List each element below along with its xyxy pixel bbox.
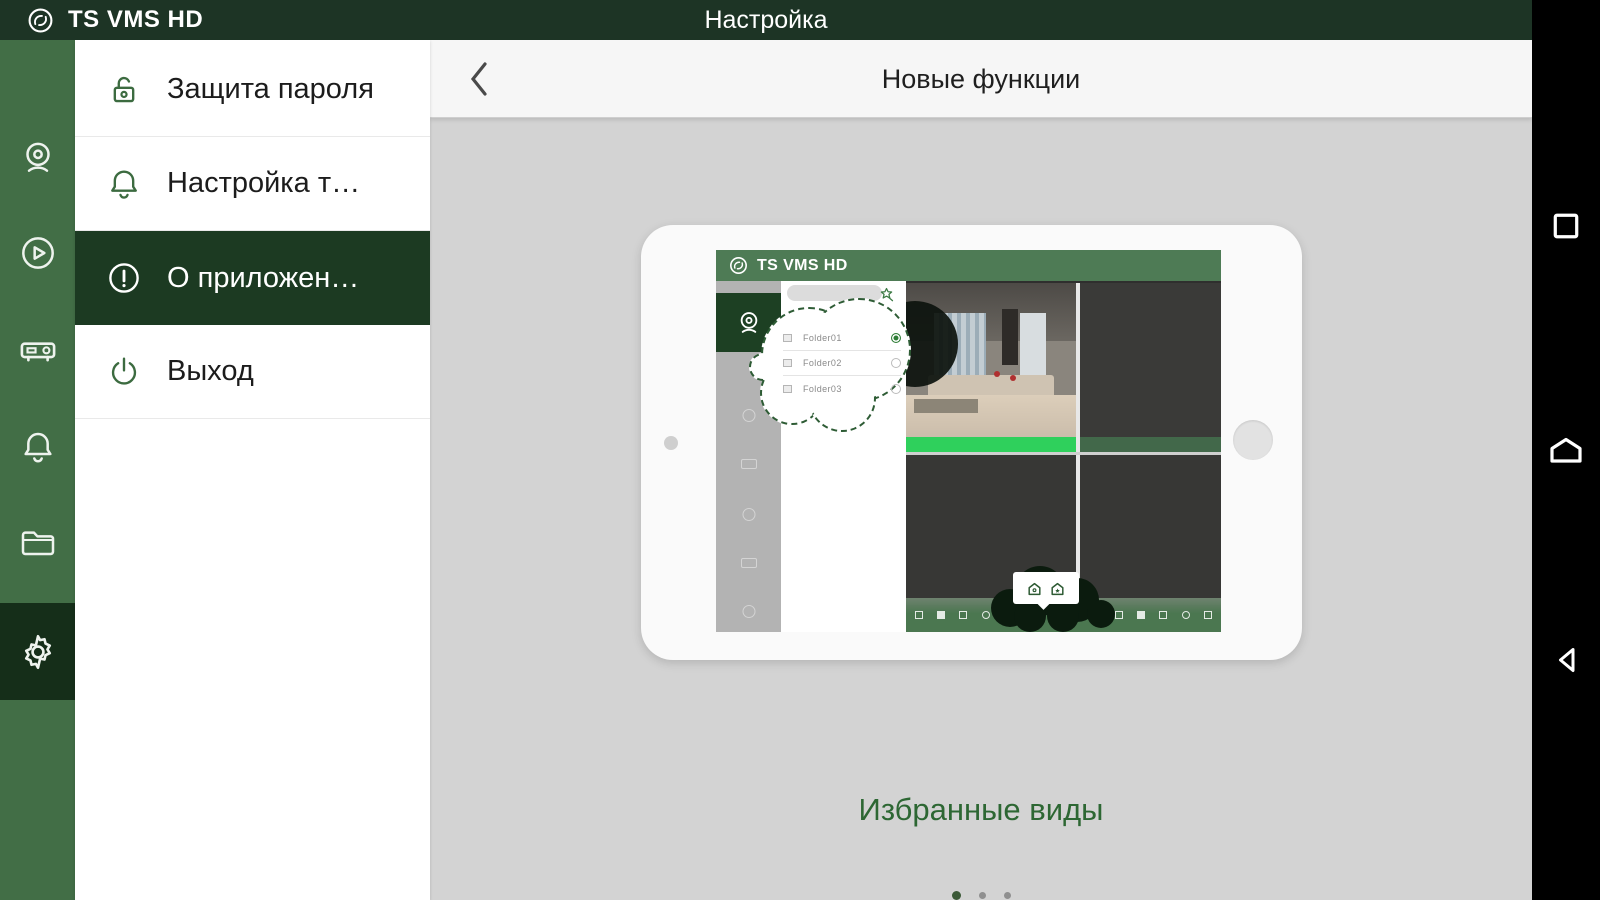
alarm-bell-icon xyxy=(18,427,58,467)
file-folder-icon xyxy=(18,523,58,563)
mini-toolbar-icon xyxy=(1137,611,1145,619)
channel-bar xyxy=(1080,437,1221,452)
favorite-folder-row: Folder02 xyxy=(783,351,901,376)
mini-video-cell-empty xyxy=(1080,283,1221,437)
tablet-camera-dot xyxy=(664,436,678,450)
bell-icon xyxy=(105,165,143,203)
menu-item-password-protection[interactable]: Защита пароля xyxy=(75,43,430,137)
menu-item-label: О приложен… xyxy=(167,262,359,295)
mini-app-logo-icon xyxy=(729,256,748,275)
folder-mini-icon xyxy=(783,334,792,342)
menu-item-alarm-settings[interactable]: Настройка т… xyxy=(75,137,430,231)
mini-toolbar-icon xyxy=(1182,611,1190,619)
sidebar-item-device[interactable] xyxy=(0,314,75,386)
menu-item-logout[interactable]: Выход xyxy=(75,325,430,419)
favorite-folder-row: Folder03 xyxy=(783,376,901,401)
tablet-home-button xyxy=(1233,420,1273,460)
mini-toolbar-icon xyxy=(915,611,923,619)
folder-mini-icon xyxy=(783,385,792,393)
favorite-view-home-icon xyxy=(1026,580,1043,597)
top-app-bar: TS VMS HD Настройка xyxy=(0,0,1532,40)
radio-unselected-icon xyxy=(891,384,901,394)
tablet-illustration: TS VMS HD xyxy=(641,225,1302,660)
page-dot[interactable] xyxy=(1004,892,1011,899)
radio-selected-icon xyxy=(891,333,901,343)
folder-name: Folder01 xyxy=(803,333,842,343)
grid-divider-horizontal xyxy=(906,452,1221,455)
recents-button[interactable] xyxy=(1551,211,1581,241)
home-button[interactable] xyxy=(1546,434,1586,466)
detail-pane: Новые функции TS VMS HD xyxy=(430,40,1532,900)
mini-toolbar-icon xyxy=(1159,611,1167,619)
menu-item-label: Настройка т… xyxy=(167,167,360,200)
mini-app-title: TS VMS HD xyxy=(757,257,848,275)
mini-top-bar: TS VMS HD xyxy=(716,250,1221,281)
tablet-screen: TS VMS HD xyxy=(716,250,1221,632)
favorite-folder-row: Folder01 xyxy=(783,326,901,351)
live-view-camera-icon xyxy=(18,138,58,178)
settings-gear-icon xyxy=(17,631,59,673)
page-indicator xyxy=(430,891,1532,900)
sidebar-item-playback[interactable] xyxy=(0,217,75,289)
mini-toolbar-icon xyxy=(1204,611,1212,619)
radio-unselected-icon xyxy=(891,358,901,368)
mini-sidebar-device-icon xyxy=(741,459,757,469)
page-title: Новые функции xyxy=(430,40,1532,118)
tutorial-caption: Избранные виды xyxy=(430,792,1532,828)
back-button-nav[interactable] xyxy=(1553,645,1579,675)
folder-name: Folder03 xyxy=(803,384,842,394)
favorite-view-home-icon xyxy=(1049,580,1066,597)
mini-toolbar-icon xyxy=(959,611,967,619)
page-dot[interactable] xyxy=(979,892,986,899)
menu-item-label: Защита пароля xyxy=(167,73,374,106)
selected-channel-bar xyxy=(906,437,1076,452)
android-navigation-bar xyxy=(1532,0,1600,900)
sidebar-item-alarm[interactable] xyxy=(0,411,75,483)
folder-mini-icon xyxy=(783,359,792,367)
favorites-callout-cloud: Folder01 Folder02 Folder03 xyxy=(747,293,923,435)
power-icon xyxy=(105,353,143,391)
menu-item-about-app[interactable]: О приложен… xyxy=(75,231,430,325)
lock-open-icon xyxy=(105,71,143,109)
info-exclamation-icon xyxy=(105,259,143,297)
playback-icon xyxy=(18,233,58,273)
main-sidebar xyxy=(0,40,75,900)
sidebar-item-files[interactable] xyxy=(0,507,75,579)
mini-sidebar-files-icon xyxy=(741,558,757,568)
menu-item-label: Выход xyxy=(167,355,254,388)
sidebar-item-settings[interactable] xyxy=(0,603,75,700)
settings-menu-panel: Защита пароля Настройка т… О приложен… В… xyxy=(75,40,430,900)
mini-sidebar-settings-icon xyxy=(742,605,755,618)
mini-toolbar-icon xyxy=(937,611,945,619)
folder-name: Folder02 xyxy=(803,358,842,368)
detail-header: Новые функции xyxy=(430,40,1532,118)
page-dot-active[interactable] xyxy=(952,891,961,900)
mini-sidebar-alarm-icon xyxy=(742,508,755,521)
favorite-views-badge xyxy=(1013,572,1079,604)
device-dvr-icon xyxy=(17,329,59,371)
mini-video-cell-live xyxy=(906,283,1076,437)
screen-title: Настройка xyxy=(0,0,1532,40)
sidebar-item-live-view[interactable] xyxy=(0,122,75,194)
